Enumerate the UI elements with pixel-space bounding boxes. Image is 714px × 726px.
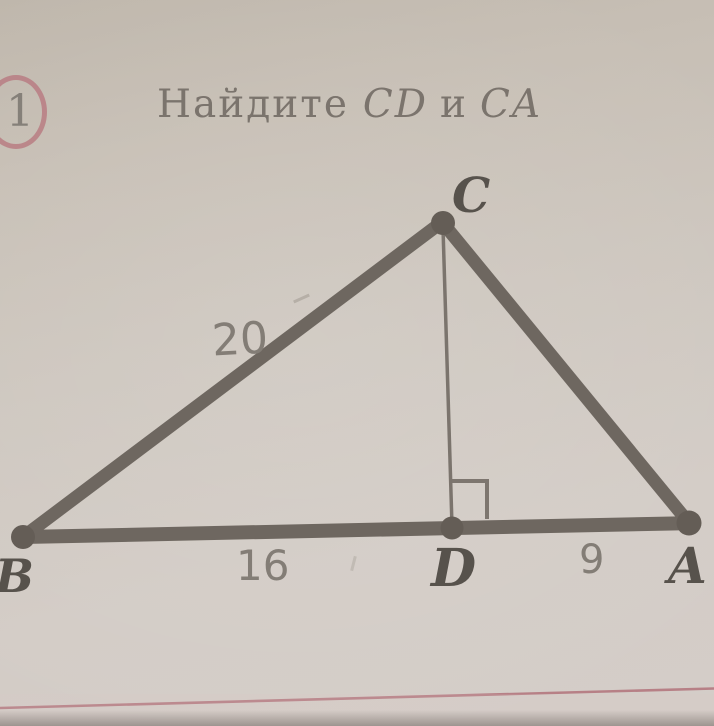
measure-da: 9 [579,540,604,580]
triangle-diagram [0,0,714,726]
side-ca-line [442,222,689,523]
vertex-dot-d [441,517,464,540]
vertex-label-a: A [668,541,707,591]
side-bc-line [23,222,442,537]
base-ba-line [23,523,697,537]
vertex-dot-b [11,525,35,549]
right-angle-mark [452,481,487,519]
measure-bd: 16 [236,545,289,587]
vertex-label-d: D [431,543,476,595]
altitude-cd-line [443,228,452,526]
photo-edge-shadow [0,710,714,726]
vertex-label-c: C [452,172,490,220]
vertex-label-b: B [0,553,34,599]
textbook-photo-page: 1 НайдитеCDиCA C B D A 20 16 9 [0,0,714,726]
vertex-dot-a [677,511,702,536]
measure-bc: 20 [211,317,269,364]
